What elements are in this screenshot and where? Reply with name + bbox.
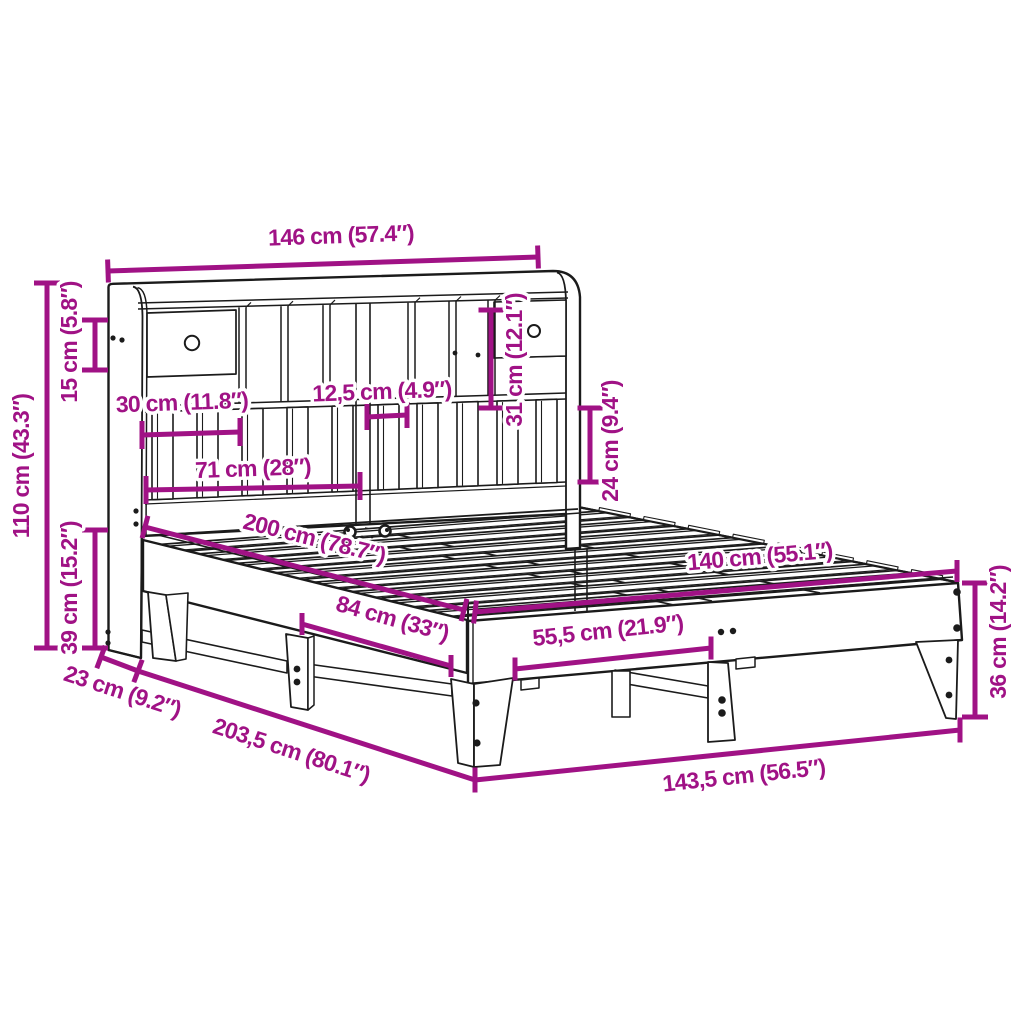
svg-text:24 cm (9.4″): 24 cm (9.4″) bbox=[597, 380, 623, 502]
svg-text:12,5 cm (4.9″): 12,5 cm (4.9″) bbox=[312, 376, 452, 407]
svg-text:15 cm (5.8″): 15 cm (5.8″) bbox=[56, 281, 82, 403]
svg-text:110 cm (43.3″): 110 cm (43.3″) bbox=[8, 394, 34, 538]
svg-text:30 cm (11.8″): 30 cm (11.8″) bbox=[115, 387, 248, 418]
svg-text:36 cm (14.2″): 36 cm (14.2″) bbox=[985, 565, 1011, 699]
svg-text:146 cm (57.4″): 146 cm (57.4″) bbox=[268, 220, 415, 251]
svg-text:31 cm (12.1″): 31 cm (12.1″) bbox=[501, 293, 527, 427]
svg-text:39 cm (15.2″): 39 cm (15.2″) bbox=[56, 521, 82, 655]
svg-text:71 cm (28″): 71 cm (28″) bbox=[195, 453, 312, 483]
